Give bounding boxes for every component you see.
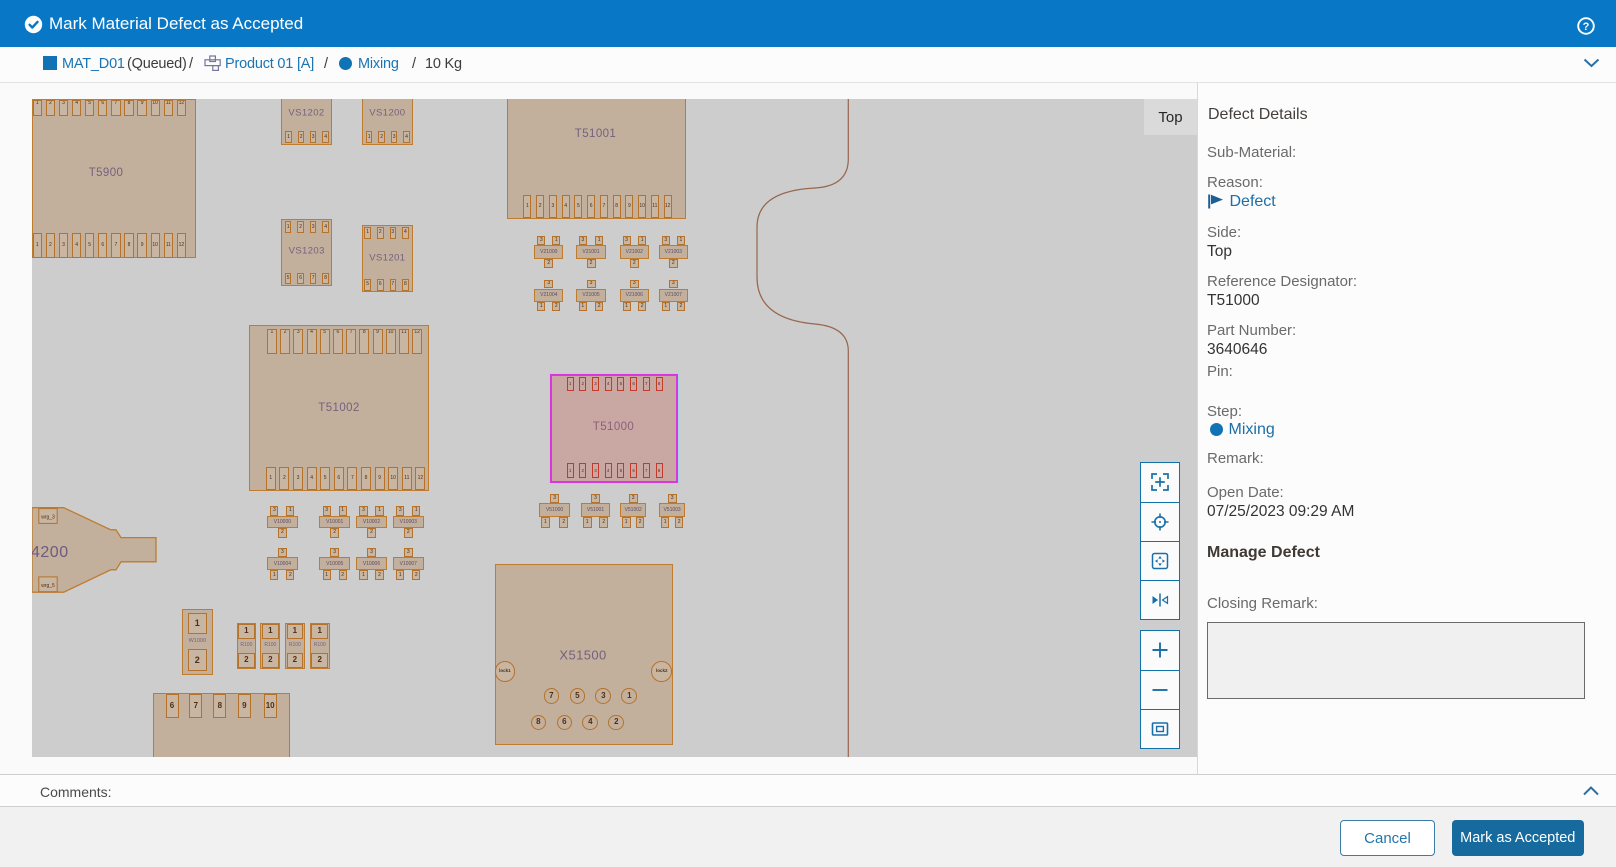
svg-text:?: ? xyxy=(1583,21,1590,33)
